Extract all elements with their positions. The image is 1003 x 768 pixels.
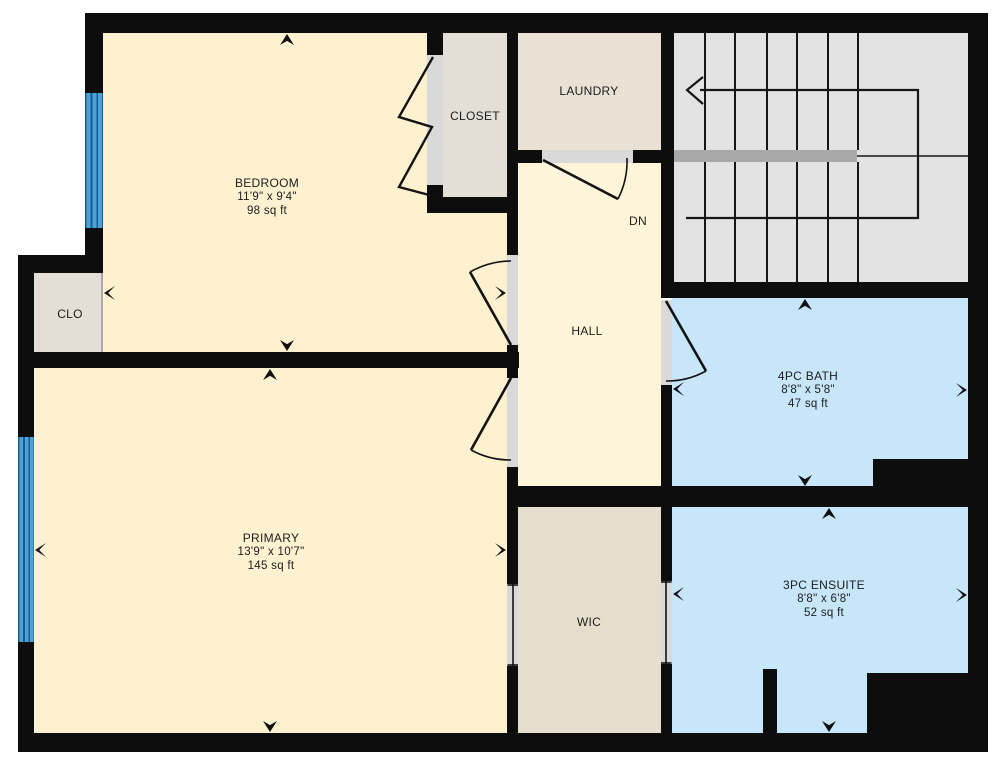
wall-primary-wic-upper [507, 467, 518, 584]
hall-name: HALL [527, 324, 647, 338]
bedroom-dims: 11'9" x 9'4" [187, 190, 347, 204]
clo-label: CLO [30, 307, 110, 321]
wall-ensuite-notch [867, 673, 968, 733]
bath-dims: 8'8" x 5'8" [728, 383, 888, 397]
primary-label: PRIMARY 13'9" x 10'7" 145 sq ft [191, 531, 351, 573]
wall-ensuite-stub [763, 669, 777, 733]
wall-stairs-bottom [661, 282, 968, 298]
laundry-label: LAUNDRY [529, 84, 649, 98]
wall-clo-top [18, 255, 103, 273]
wall-stairs-left [661, 13, 674, 298]
bedroom-label: BEDROOM 11'9" x 9'4" 98 sq ft [187, 176, 347, 218]
ensuite-dims: 8'8" x 6'8" [744, 592, 904, 606]
wall-wic-ensuite-upper [661, 507, 672, 581]
wall-wic-ensuite-lower [661, 664, 672, 733]
wall-primary-wic-lower [507, 666, 518, 733]
stairs-dn-label: DN [598, 214, 678, 228]
laundry-door-threshold [542, 150, 633, 163]
wall-laundry-bottom-left [518, 150, 542, 163]
wall-closet-stub-bottom [427, 185, 443, 197]
floor-plan: BEDROOM 11'9" x 9'4" 98 sq ft CLOSET LAU… [0, 0, 1003, 768]
ensuite-area: 52 sq ft [744, 606, 904, 620]
wall-hall-left-mid [507, 345, 518, 378]
bath-name: 4PC BATH [728, 369, 888, 383]
wall-right [968, 13, 988, 752]
primary-dims: 13'9" x 10'7" [191, 545, 351, 559]
bedroom-window [85, 93, 103, 228]
ensuite-label: 3PC ENSUITE 8'8" x 6'8" 52 sq ft [744, 578, 904, 620]
wall-closet-stub-top [427, 33, 443, 55]
bedroom-name: BEDROOM [187, 176, 347, 190]
stairs-direction: DN [598, 214, 678, 228]
wall-closet-bottom [427, 197, 508, 213]
wall-bottom [18, 733, 988, 752]
wic-label: WIC [529, 615, 649, 629]
bath-label: 4PC BATH 8'8" x 5'8" 47 sq ft [728, 369, 888, 411]
ensuite-name: 3PC ENSUITE [744, 578, 904, 592]
bath-door-threshold [661, 300, 672, 385]
wic-name: WIC [529, 615, 649, 629]
bath-area: 47 sq ft [728, 397, 888, 411]
wall-hall-left-upper [507, 13, 518, 255]
wall-top [85, 13, 988, 33]
wic-pocket-door-left-threshold [507, 584, 518, 666]
wic-pocket-door-right-threshold [661, 581, 672, 664]
primary-window [18, 437, 34, 642]
hall-label: HALL [527, 324, 647, 338]
primary-area: 145 sq ft [191, 559, 351, 573]
closet-name: CLOSET [415, 109, 535, 123]
stair-railing [674, 150, 857, 162]
primary-name: PRIMARY [191, 531, 351, 545]
laundry-name: LAUNDRY [529, 84, 649, 98]
clo-name: CLO [30, 307, 110, 321]
primary-door-threshold [507, 378, 518, 467]
wall-bedroom-primary-divider [18, 352, 519, 368]
room-bedroom-lower [103, 213, 507, 352]
closet-label: CLOSET [415, 109, 535, 123]
bedroom-area: 98 sq ft [187, 204, 347, 218]
bedroom-door-threshold [507, 255, 518, 345]
wall-bath-notch [873, 459, 968, 507]
